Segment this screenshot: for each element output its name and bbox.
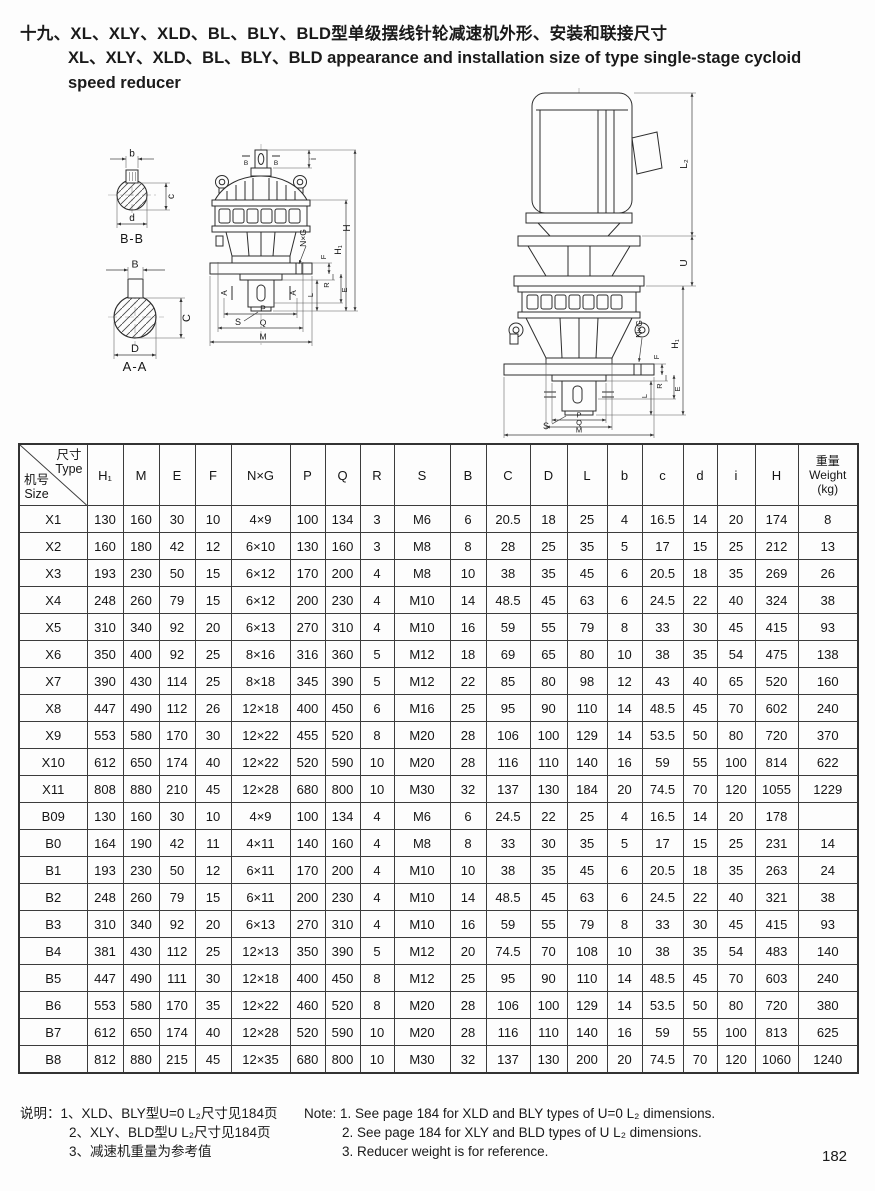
dim-cell: 380	[798, 992, 858, 1019]
dim-cell: 215	[159, 1046, 195, 1074]
dim-cell: 14	[607, 695, 642, 722]
dim-cell: 164	[87, 830, 123, 857]
dim-label-C: C	[181, 314, 193, 322]
dim-cell: 69	[486, 641, 530, 668]
dim-cell: 590	[325, 749, 360, 776]
dim-cell: 79	[567, 911, 607, 938]
dim-cell: 42	[159, 830, 195, 857]
dim-cell: 622	[798, 749, 858, 776]
dim-cell: 20.5	[642, 560, 683, 587]
dim-cell: 170	[290, 560, 325, 587]
page-title-en-line1: XL、XLY、XLD、BL、BLY、BLD appearance and ins…	[68, 46, 801, 71]
page-title-zh: 十九、XL、XLY、XLD、BL、BLY、BLD型单级摆线针轮减速机外形、安装和…	[20, 20, 667, 44]
dim-cell: 35	[717, 857, 755, 884]
dim-cell: 6×11	[231, 884, 290, 911]
note-en-1: Note: 1. See page 184 for XLD and BLY ty…	[304, 1104, 715, 1123]
dim-cell: 16.5	[642, 803, 683, 830]
dim-cell: 33	[642, 911, 683, 938]
dim-cell: 20.5	[642, 857, 683, 884]
dim-cell: 8	[607, 911, 642, 938]
dim-cell: 11	[195, 830, 231, 857]
dim-cell: 45	[567, 560, 607, 587]
col-header-i: i	[717, 444, 755, 506]
dim-cell: 48.5	[642, 965, 683, 992]
dim-cell: 25	[717, 533, 755, 560]
col-header-R: R	[360, 444, 394, 506]
dim-cell: 70	[683, 1046, 717, 1074]
row-model: B8	[19, 1046, 87, 1074]
dim-cell: 25	[195, 668, 231, 695]
dim-cell: 48.5	[486, 587, 530, 614]
dim-cell: 116	[486, 749, 530, 776]
dim-cell: 20	[717, 506, 755, 533]
dim-cell: 50	[159, 857, 195, 884]
dim-cell: 55	[683, 1019, 717, 1046]
table-row: X7390430114258×183453905M122285809812434…	[19, 668, 858, 695]
dim-cell: 42	[159, 533, 195, 560]
dim-cell: 55	[683, 749, 717, 776]
dim-cell: M10	[394, 911, 450, 938]
dim-cell: 8	[798, 506, 858, 533]
dim-cell: M20	[394, 992, 450, 1019]
dim-cell: 231	[755, 830, 798, 857]
dim-cell: 50	[683, 992, 717, 1019]
dim-cell: 14	[450, 587, 486, 614]
row-model: X11	[19, 776, 87, 803]
dim-cell: 8	[360, 992, 394, 1019]
dim-cell: 18	[683, 857, 717, 884]
dim-cell: 813	[755, 1019, 798, 1046]
dim-cell: 110	[567, 695, 607, 722]
page-number: 182	[822, 1148, 847, 1165]
note-zh-1: 说明：1、XLD、BLY型U=0 L₂尺寸见184页	[20, 1104, 277, 1123]
dim-cell: 260	[123, 587, 159, 614]
dim-label-M-mid: M	[259, 332, 266, 342]
dim-cell: 160	[123, 506, 159, 533]
dim-cell: 160	[87, 533, 123, 560]
dim-cell: 45	[717, 911, 755, 938]
dim-cell: M10	[394, 614, 450, 641]
dim-label-c: c	[166, 194, 177, 199]
dim-cell: 602	[755, 695, 798, 722]
col-header-L: L	[567, 444, 607, 506]
dim-cell: 111	[159, 965, 195, 992]
dim-cell: 15	[683, 533, 717, 560]
dim-cell: 1060	[755, 1046, 798, 1074]
dim-cell: 10	[360, 1046, 394, 1074]
col-header-S: S	[394, 444, 450, 506]
row-model: X2	[19, 533, 87, 560]
dim-cell: 360	[325, 641, 360, 668]
dim-cell: 40	[717, 587, 755, 614]
dim-cell: 92	[159, 614, 195, 641]
dim-label-U: U	[679, 259, 690, 266]
dim-cell: 212	[755, 533, 798, 560]
dim-cell: 45	[567, 857, 607, 884]
dim-cell: 4×11	[231, 830, 290, 857]
dim-cell: 612	[87, 1019, 123, 1046]
dim-cell: 112	[159, 695, 195, 722]
dim-cell: 10	[360, 1019, 394, 1046]
dim-cell: 80	[567, 641, 607, 668]
dim-cell: 38	[798, 587, 858, 614]
row-model: B3	[19, 911, 87, 938]
dim-cell: 230	[325, 587, 360, 614]
dim-cell: 4	[607, 803, 642, 830]
dim-cell: 35	[567, 830, 607, 857]
dim-label-NxG-right: N×G	[634, 320, 644, 338]
dim-cell: 10	[607, 641, 642, 668]
dim-cell: 130	[87, 506, 123, 533]
dim-cell: 400	[290, 965, 325, 992]
dim-cell: 720	[755, 722, 798, 749]
dim-cell: M6	[394, 803, 450, 830]
cutplane-label-B-left: B	[244, 160, 248, 167]
table-row: B43814301122512×133503905M122074.5701081…	[19, 938, 858, 965]
dim-cell: 85	[486, 668, 530, 695]
dim-cell: 70	[717, 695, 755, 722]
dim-cell: 12×22	[231, 992, 290, 1019]
dim-cell: 430	[123, 938, 159, 965]
col-header-Q: Q	[325, 444, 360, 506]
table-row: B88128802154512×3568080010M3032137130200…	[19, 1046, 858, 1074]
dim-cell: 14	[607, 992, 642, 1019]
dim-cell: 14	[683, 506, 717, 533]
dim-cell: 20	[195, 911, 231, 938]
dim-label-H-mid: H	[342, 224, 353, 231]
dim-cell: 24	[798, 857, 858, 884]
dim-cell: 800	[325, 1046, 360, 1074]
dim-cell: 38	[486, 857, 530, 884]
dim-label-L2: L₂	[679, 159, 690, 169]
dim-cell: 22	[683, 884, 717, 911]
dim-cell: 28	[450, 992, 486, 1019]
dim-cell: 612	[87, 749, 123, 776]
dim-cell: 137	[486, 1046, 530, 1074]
dim-cell: 5	[607, 533, 642, 560]
dim-cell: 25	[450, 965, 486, 992]
dim-cell: 12×13	[231, 938, 290, 965]
dim-cell: 16	[607, 749, 642, 776]
col-header-weight: 重量 Weight (kg)	[798, 444, 858, 506]
dim-cell: 160	[325, 830, 360, 857]
dim-cell: 1055	[755, 776, 798, 803]
dim-cell: 32	[450, 1046, 486, 1074]
dim-cell: 230	[325, 884, 360, 911]
corner-type-label: 尺寸Type	[55, 449, 82, 476]
dim-cell: 12	[607, 668, 642, 695]
dim-cell: 880	[123, 1046, 159, 1074]
dim-cell: 8×16	[231, 641, 290, 668]
dim-cell: 80	[717, 722, 755, 749]
dim-cell: 447	[87, 965, 123, 992]
section-view-aa-drawing: B C D A-A	[82, 260, 210, 374]
col-header-B: B	[450, 444, 486, 506]
dim-cell: 59	[486, 614, 530, 641]
dim-cell: 130	[530, 1046, 567, 1074]
dim-cell: 63	[567, 884, 607, 911]
dim-cell: 16	[450, 614, 486, 641]
dim-cell: 4	[360, 587, 394, 614]
dim-cell: 16.5	[642, 506, 683, 533]
dim-cell: 33	[486, 830, 530, 857]
dim-label-D: D	[131, 343, 139, 355]
dim-cell: 814	[755, 749, 798, 776]
dim-cell: 248	[87, 884, 123, 911]
dim-cell: 70	[530, 938, 567, 965]
dim-cell: 447	[87, 695, 123, 722]
dim-cell: 450	[325, 965, 360, 992]
dim-cell: 200	[290, 884, 325, 911]
dim-cell: 10	[360, 749, 394, 776]
row-model: X3	[19, 560, 87, 587]
col-header-NxG: N×G	[231, 444, 290, 506]
dim-cell: 3	[360, 533, 394, 560]
dim-cell: 310	[325, 614, 360, 641]
dim-cell: M30	[394, 776, 450, 803]
dim-cell: 92	[159, 911, 195, 938]
dim-cell: 880	[123, 776, 159, 803]
spec-table-body: X113016030104×91001343M6620.51825416.514…	[19, 506, 858, 1074]
table-header-row: 尺寸Type 机号Size H₁ M E F N×G P Q R S B	[19, 444, 858, 506]
dim-cell: 25	[567, 803, 607, 830]
row-model: X9	[19, 722, 87, 749]
reducer-front-view-drawing: B B	[202, 140, 362, 352]
dim-cell: 20.5	[486, 506, 530, 533]
dim-cell: 6	[607, 884, 642, 911]
table-row: X84474901122612×184004506M16259590110144…	[19, 695, 858, 722]
dim-cell: 580	[123, 992, 159, 1019]
dim-cell: 310	[87, 614, 123, 641]
dim-cell: 340	[123, 614, 159, 641]
dim-label-d: d	[129, 213, 135, 224]
table-row: X95535801703012×224555208M20281061001291…	[19, 722, 858, 749]
dim-label-B: B	[131, 259, 138, 271]
dim-cell: 200	[325, 857, 360, 884]
table-row: B119323050126×111702004M1010383545620.51…	[19, 857, 858, 884]
dim-cell: 120	[717, 776, 755, 803]
dim-cell: 100	[717, 749, 755, 776]
dim-cell: 520	[290, 749, 325, 776]
col-header-F: F	[195, 444, 231, 506]
dim-cell: 160	[123, 803, 159, 830]
dim-cell: 520	[325, 722, 360, 749]
dim-cell: 15	[195, 884, 231, 911]
dim-cell: 63	[567, 587, 607, 614]
dim-cell: 6×13	[231, 614, 290, 641]
dim-cell: 45	[683, 695, 717, 722]
corner-size-label: 机号Size	[24, 474, 49, 501]
dim-cell: 25	[717, 830, 755, 857]
dim-cell: 6	[607, 857, 642, 884]
dim-cell: 93	[798, 614, 858, 641]
dim-cell: 48.5	[486, 884, 530, 911]
note-zh-3: 3、减速机重量为参考值	[69, 1142, 277, 1161]
dim-cell: 24.5	[642, 884, 683, 911]
section-aa-caption: A-A	[123, 359, 148, 374]
dim-cell: 8	[360, 965, 394, 992]
dim-cell: 10	[450, 560, 486, 587]
dim-cell: 15	[683, 830, 717, 857]
dim-cell: 16	[607, 1019, 642, 1046]
row-model: B7	[19, 1019, 87, 1046]
dim-cell: 475	[755, 641, 798, 668]
dim-cell: 184	[567, 776, 607, 803]
dim-cell: 270	[290, 911, 325, 938]
dim-cell: 55	[530, 911, 567, 938]
dim-cell: 340	[123, 911, 159, 938]
dim-cell: 450	[325, 695, 360, 722]
row-model: B09	[19, 803, 87, 830]
dim-cell: M10	[394, 884, 450, 911]
row-model: X10	[19, 749, 87, 776]
dim-cell: M20	[394, 1019, 450, 1046]
dim-cell: 74.5	[642, 1046, 683, 1074]
col-header-H: H	[755, 444, 798, 506]
dim-cell: 32	[450, 776, 486, 803]
dim-cell: 12	[195, 533, 231, 560]
table-row: B76126501744012×2852059010M2028116110140…	[19, 1019, 858, 1046]
dim-cell: 129	[567, 722, 607, 749]
dim-cell: 35	[567, 533, 607, 560]
dim-cell: 22	[450, 668, 486, 695]
dim-cell: 808	[87, 776, 123, 803]
dim-cell: 22	[683, 587, 717, 614]
dim-cell: 95	[486, 965, 530, 992]
dim-cell: 25	[567, 506, 607, 533]
dim-cell: 28	[450, 1019, 486, 1046]
row-model: X1	[19, 506, 87, 533]
dim-cell: 28	[450, 722, 486, 749]
dim-cell: 580	[123, 722, 159, 749]
dim-cell: 200	[290, 587, 325, 614]
dim-cell: 100	[530, 722, 567, 749]
table-row: X118088802104512×2868080010M303213713018…	[19, 776, 858, 803]
dim-cell: 4	[360, 857, 394, 884]
dim-cell: 190	[123, 830, 159, 857]
dim-cell: 316	[290, 641, 325, 668]
dim-label-NxG-mid: N×G	[298, 229, 308, 247]
dim-cell: 6	[360, 695, 394, 722]
dim-cell: 25	[195, 938, 231, 965]
dim-cell: 812	[87, 1046, 123, 1074]
dim-cell: 20	[607, 1046, 642, 1074]
dim-cell: 79	[159, 884, 195, 911]
dim-cell: 45	[530, 587, 567, 614]
row-model: X6	[19, 641, 87, 668]
dim-cell: 10	[195, 506, 231, 533]
dim-cell: 59	[642, 749, 683, 776]
dim-cell: 400	[290, 695, 325, 722]
col-header-d: d	[683, 444, 717, 506]
dim-cell: 18	[683, 560, 717, 587]
dim-cell: 174	[159, 1019, 195, 1046]
dim-cell: 106	[486, 992, 530, 1019]
dim-cell: 80	[717, 992, 755, 1019]
row-model: B0	[19, 830, 87, 857]
dim-cell: 108	[567, 938, 607, 965]
dim-cell: 490	[123, 695, 159, 722]
table-row: X113016030104×91001343M6620.51825416.514…	[19, 506, 858, 533]
dim-cell: 30	[195, 722, 231, 749]
dim-cell: 345	[290, 668, 325, 695]
table-row: B65535801703512×224605208M20281061001291…	[19, 992, 858, 1019]
dim-cell: 45	[195, 776, 231, 803]
row-model: X5	[19, 614, 87, 641]
dim-cell: 140	[798, 938, 858, 965]
dim-cell: 520	[290, 1019, 325, 1046]
dim-label-F-mid: F	[319, 254, 328, 259]
table-row: X635040092258×163163605M1218696580103835…	[19, 641, 858, 668]
dim-cell: 35	[530, 857, 567, 884]
notes-zh: 说明：1、XLD、BLY型U=0 L₂尺寸见184页 2、XLY、BLD型U L…	[20, 1104, 277, 1161]
dim-label-S-mid: S	[235, 317, 241, 327]
dim-cell: 55	[530, 614, 567, 641]
dim-cell: 40	[717, 884, 755, 911]
cutplane-label-A-left: A	[220, 290, 229, 296]
dim-cell: 24.5	[486, 803, 530, 830]
dim-cell: 12×22	[231, 749, 290, 776]
dim-cell: 230	[123, 560, 159, 587]
dim-cell: 16	[450, 911, 486, 938]
dim-cell: 12×28	[231, 1019, 290, 1046]
dim-cell: 455	[290, 722, 325, 749]
dim-cell: 12×35	[231, 1046, 290, 1074]
dim-cell: M12	[394, 641, 450, 668]
dim-cell: 130	[530, 776, 567, 803]
dim-cell: 74.5	[642, 776, 683, 803]
dim-cell: 553	[87, 722, 123, 749]
dim-cell: 28	[450, 749, 486, 776]
dim-cell	[798, 803, 858, 830]
dim-cell: 390	[325, 668, 360, 695]
dim-cell: 48.5	[642, 695, 683, 722]
row-model: B6	[19, 992, 87, 1019]
dim-cell: 53.5	[642, 992, 683, 1019]
dim-cell: 240	[798, 965, 858, 992]
dim-cell: 4	[360, 803, 394, 830]
col-header-M: M	[123, 444, 159, 506]
dim-cell: 15	[195, 560, 231, 587]
dim-cell: 10	[450, 857, 486, 884]
dim-cell: 680	[290, 776, 325, 803]
dim-label-R-right: R	[655, 383, 664, 389]
reducer-with-motor-drawing: S P Q M L₂ U H₁ N×G F R E	[440, 86, 705, 440]
dim-cell: 22	[530, 803, 567, 830]
dim-cell: 4	[360, 884, 394, 911]
dim-cell: 8	[450, 830, 486, 857]
dim-cell: 45	[717, 614, 755, 641]
dim-cell: 110	[530, 1019, 567, 1046]
note-en-2: 2. See page 184 for XLY and BLD types of…	[342, 1123, 715, 1142]
dim-cell: 30	[159, 506, 195, 533]
dim-cell: 14	[683, 803, 717, 830]
dim-cell: 12×22	[231, 722, 290, 749]
table-row: B0913016030104×91001344M6624.52225416.51…	[19, 803, 858, 830]
dim-cell: 79	[567, 614, 607, 641]
dim-cell: 90	[530, 695, 567, 722]
dim-cell: 248	[87, 587, 123, 614]
dim-cell: 8	[450, 533, 486, 560]
dim-cell: 112	[159, 938, 195, 965]
dim-cell: 14	[607, 965, 642, 992]
dim-cell: 460	[290, 992, 325, 1019]
dim-cell: 12×18	[231, 965, 290, 992]
dim-cell: 1229	[798, 776, 858, 803]
dim-cell: M16	[394, 695, 450, 722]
dim-cell: 1240	[798, 1046, 858, 1074]
dim-cell: 17	[642, 830, 683, 857]
